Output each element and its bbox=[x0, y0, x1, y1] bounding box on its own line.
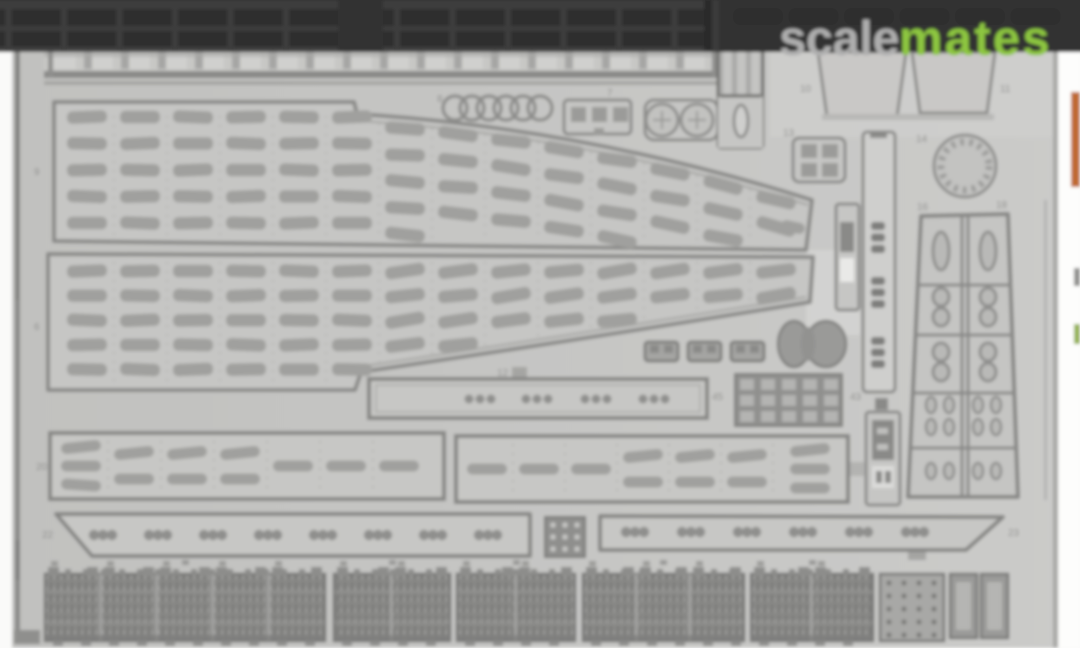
svg-text:22: 22 bbox=[42, 530, 54, 541]
svg-text:scale: scale bbox=[779, 12, 899, 66]
svg-text:11: 11 bbox=[1000, 84, 1011, 95]
svg-text:45: 45 bbox=[712, 392, 724, 403]
svg-text:6: 6 bbox=[34, 322, 40, 333]
svg-text:43: 43 bbox=[850, 392, 862, 403]
svg-text:mates: mates bbox=[899, 12, 1052, 66]
svg-text:18: 18 bbox=[996, 200, 1008, 211]
svg-text:23: 23 bbox=[1008, 528, 1020, 539]
svg-text:13: 13 bbox=[783, 128, 795, 139]
svg-text:16: 16 bbox=[917, 202, 929, 213]
svg-text:10: 10 bbox=[800, 84, 812, 95]
svg-text:7: 7 bbox=[607, 88, 613, 99]
svg-text:20: 20 bbox=[36, 462, 48, 473]
svg-text:9: 9 bbox=[34, 167, 40, 178]
svg-text:8: 8 bbox=[437, 94, 443, 105]
svg-text:14: 14 bbox=[916, 134, 928, 145]
